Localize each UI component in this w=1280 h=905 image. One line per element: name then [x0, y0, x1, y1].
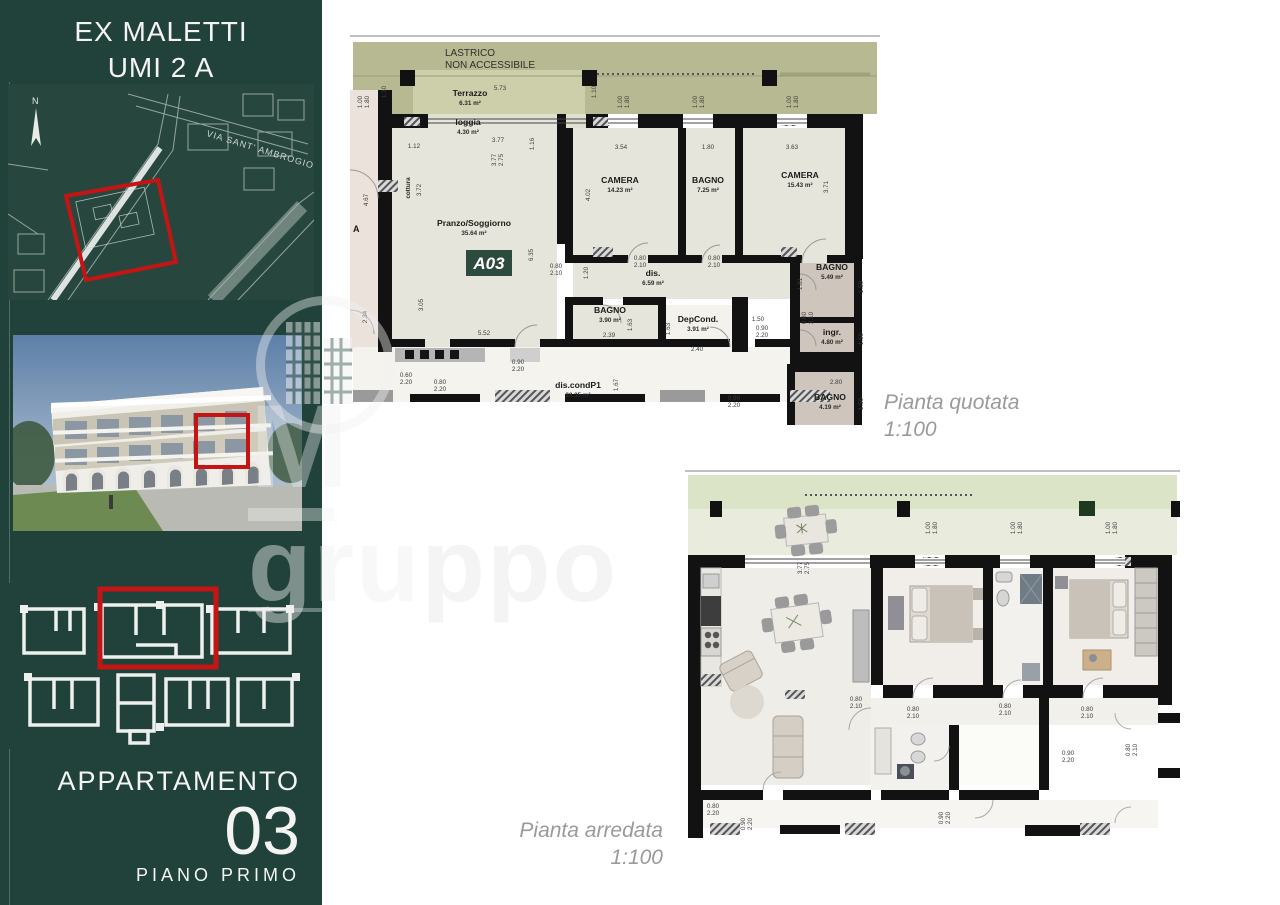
dim-label: 3.71 [823, 180, 830, 193]
dim-label: 3.72 [416, 183, 423, 196]
dim-label: 0.802.10 [907, 706, 920, 720]
terrace-band [685, 471, 1180, 555]
dim-label: 0.802.20 [707, 803, 720, 817]
wardrobe [1135, 568, 1157, 656]
dim-label: 0.802.10 [1081, 706, 1094, 720]
dim-label: 3.772.75 [797, 561, 811, 574]
dim-label: 1.001.80 [692, 95, 706, 108]
caption-arredata-title: Pianta arredata [420, 817, 663, 844]
site-map: N VIA SANT' AMBROGIO [8, 84, 314, 300]
dim-label: 1.001.80 [786, 95, 800, 108]
dim-label: 3.772.75 [491, 153, 505, 166]
dim-label: 4.02 [585, 188, 592, 201]
dim-label: 4.67 [363, 193, 370, 206]
building-mass [51, 387, 273, 493]
dim-label: 3.77 [492, 137, 505, 144]
floor-plan-quotata: A03 A LASTRICO NON ACCESSIBILE Terrazzo6… [350, 30, 880, 432]
neighbor-unit-label: A [353, 224, 360, 234]
dim-label: 1.50 [858, 280, 865, 293]
sidebar: EX MALETTI UMI 2 A N VIA SANT' AMBROGIO [0, 0, 322, 905]
apartment-number: 03 [14, 799, 300, 863]
unit-badge-label: A03 [472, 254, 505, 273]
dim-label: 1.001.80 [1010, 521, 1024, 534]
room-label: ingr.4.80 m² [821, 327, 843, 346]
dim-label: 0.902.20 [728, 395, 741, 409]
dim-label: 1.50 [858, 397, 865, 410]
dim-label: 1.67 [613, 378, 620, 391]
desk [1083, 650, 1111, 670]
room-label: loggia4.30 m² [455, 117, 481, 136]
dim-label: 1.10 [591, 85, 598, 98]
building-render-art [13, 335, 302, 531]
dim-label: 0.802.10 [708, 255, 721, 269]
dim-label: 1.50 [752, 316, 765, 323]
dim-label: 2.40 [691, 346, 704, 353]
caption-quotata: Pianta quotata 1:100 [884, 389, 1019, 443]
dim-label: 0.802.10 [850, 696, 863, 710]
dim-label: 1.001.80 [617, 95, 631, 108]
dim-label: 1.50 [858, 332, 865, 345]
floor-key-plan [6, 583, 314, 749]
dim-label: 5.73 [494, 85, 507, 92]
brochure-page: { "sidebar": { "title_line1": "EX MALETT… [0, 0, 1280, 905]
dim-label: 1.001.80 [925, 521, 939, 534]
dim-label: 2.80 [830, 379, 843, 386]
dim-label: 1.30 [381, 85, 388, 98]
project-title: EX MALETTI UMI 2 A [0, 14, 322, 86]
dim-label: 0.902.20 [740, 817, 754, 830]
rug [730, 685, 764, 719]
caption-arredata-scale: 1:100 [420, 844, 663, 871]
dim-label: 1.80 [702, 144, 715, 151]
dim-label: 1.63 [665, 322, 672, 335]
project-title-line1: EX MALETTI [0, 14, 322, 50]
caption-quotata-scale: 1:100 [884, 416, 1019, 443]
dresser [888, 596, 904, 630]
dim-label: 0.802.10 [801, 311, 815, 324]
roof-label-line2: NON ACCESSIBILE [445, 60, 535, 71]
dim-label: 6.35 [528, 248, 535, 261]
north-label: N [32, 96, 39, 106]
dim-label: 3.05 [418, 298, 425, 311]
floor-plan-arredata: 1.001.801.001.801.001.803.772.750.802.10… [685, 468, 1180, 860]
roof-label-line1: LASTRICO [445, 48, 495, 59]
dim-label: 1.12 [408, 143, 421, 150]
apartment-block: APPARTAMENTO 03 PIANO PRIMO [14, 766, 300, 886]
dim-label: 1.81 [797, 277, 804, 290]
dim-label: 3.63 [786, 144, 799, 151]
dim-label: 2.39 [603, 332, 616, 339]
dim-label: 1.001.80 [1105, 521, 1119, 534]
sofa [773, 716, 803, 778]
dim-label: 0.902.20 [1062, 750, 1075, 764]
dim-label: 0.802.10 [550, 263, 563, 277]
dim-label: 0.802.10 [999, 703, 1012, 717]
apartment-floor-label: PIANO PRIMO [14, 865, 300, 886]
dim-label: 0.902.20 [938, 811, 952, 824]
caption-quotata-title: Pianta quotata [884, 389, 1019, 416]
dim-label: 3.54 [615, 144, 628, 151]
person-silhouette [109, 495, 113, 509]
room-label: cottura [405, 177, 412, 199]
dim-label: 2.34 [362, 310, 369, 323]
dim-label: 0.902.20 [512, 359, 525, 373]
dim-label: 0.802.10 [634, 255, 647, 269]
dim-label: 0.902.20 [756, 325, 769, 339]
dim-label: 1.63 [627, 318, 634, 331]
dim-label: 1.16 [529, 137, 536, 150]
building-render-photo [13, 335, 302, 531]
dim-label: 5.52 [478, 330, 491, 337]
dim-label: 1.20 [583, 266, 590, 279]
caption-arredata: Pianta arredata 1:100 [420, 817, 663, 871]
dim-label: 0.602.20 [400, 372, 413, 386]
dim-label: 0.802.10 [1125, 743, 1139, 756]
tv-cabinet [853, 610, 869, 682]
dim-label: 0.802.20 [434, 379, 447, 393]
laundry-unit [1022, 663, 1040, 681]
project-title-line2: UMI 2 A [0, 50, 322, 86]
dim-label: 1.001.80 [357, 95, 371, 108]
watermark-word-faint: ppo [422, 508, 619, 624]
kitchen [701, 568, 721, 686]
